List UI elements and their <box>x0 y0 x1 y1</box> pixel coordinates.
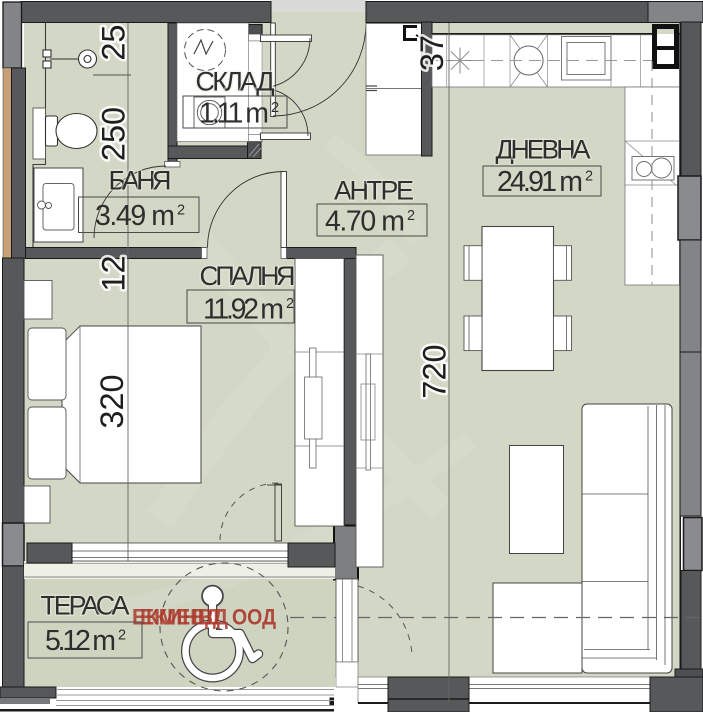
svg-text:250: 250 <box>96 107 132 161</box>
svg-text:АНТРЕ: АНТРЕ <box>334 176 414 206</box>
svg-text:ТЕРАСА: ТЕРАСА <box>41 591 130 621</box>
svg-text:4.70 m: 4.70 m <box>325 206 405 238</box>
svg-text:СКЛАД: СКЛАД <box>196 67 275 97</box>
svg-text:2: 2 <box>177 203 185 219</box>
svg-text:ДНЕВНА: ДНЕВНА <box>496 135 591 165</box>
svg-text:25: 25 <box>96 25 132 61</box>
svg-text:5.12 m: 5.12 m <box>45 625 116 657</box>
svg-text:24.91 m: 24.91 m <box>497 166 583 198</box>
svg-text:БАНЯ: БАНЯ <box>109 166 172 196</box>
svg-text:37: 37 <box>414 35 450 71</box>
svg-text:1.11 m: 1.11 m <box>199 98 269 130</box>
svg-text:11.92 m: 11.92 m <box>203 294 284 326</box>
svg-text:3.49 m: 3.49 m <box>95 200 175 232</box>
svg-text:2: 2 <box>286 296 294 312</box>
svg-text:12: 12 <box>96 255 132 291</box>
svg-text:ООД: ООД <box>232 605 276 630</box>
svg-text:2: 2 <box>271 100 279 116</box>
svg-text:720: 720 <box>417 344 453 398</box>
svg-text:СПАЛНЯ: СПАЛНЯ <box>200 261 296 291</box>
svg-text:ЕКИНВД: ЕКИНВД <box>140 605 228 630</box>
svg-text:2: 2 <box>585 169 593 185</box>
svg-text:2: 2 <box>407 208 415 224</box>
svg-text:2: 2 <box>118 628 126 644</box>
svg-text:320: 320 <box>94 374 130 428</box>
